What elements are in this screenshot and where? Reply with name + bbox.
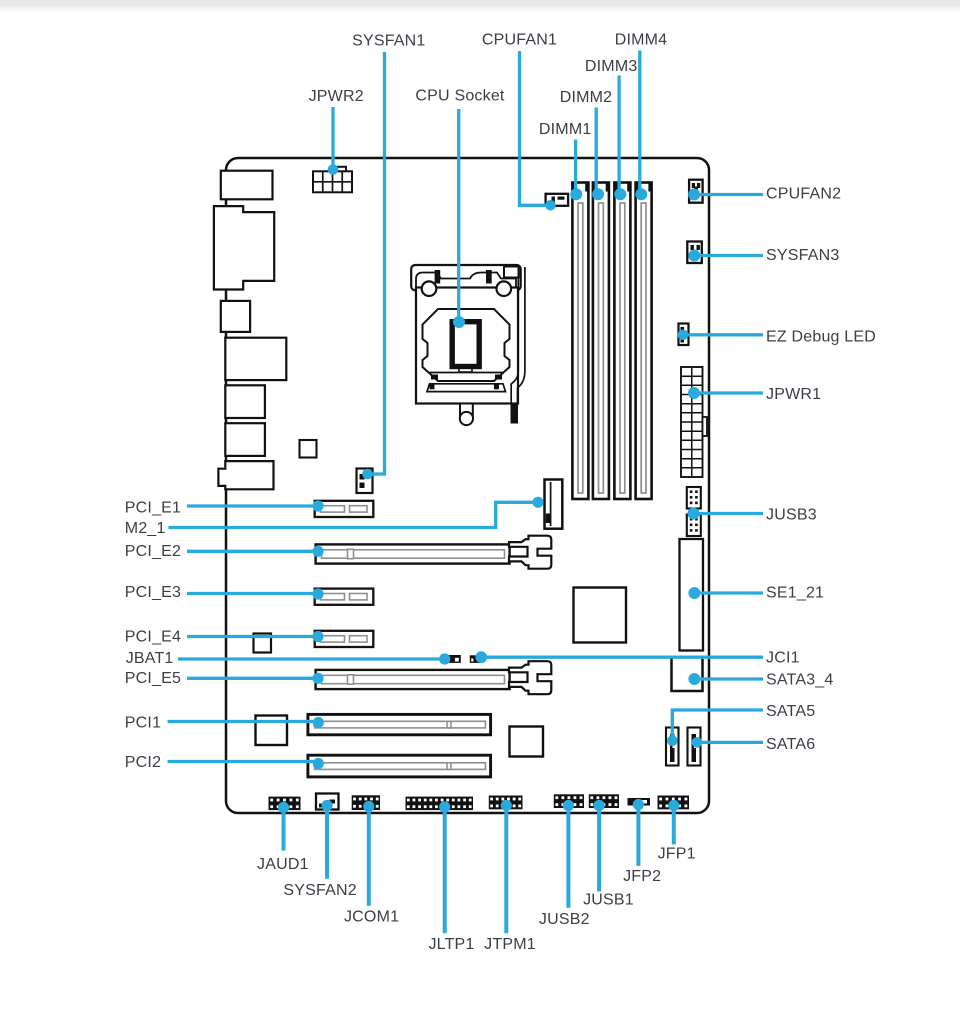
svg-text:JFP2: JFP2 [623, 868, 661, 885]
svg-text:JAUD1: JAUD1 [257, 856, 309, 873]
svg-text:CPUFAN2: CPUFAN2 [766, 186, 841, 203]
svg-text:JUSB3: JUSB3 [766, 506, 817, 523]
svg-text:SE1_21: SE1_21 [766, 585, 824, 602]
svg-text:DIMM1: DIMM1 [539, 121, 592, 138]
svg-text:PCI1: PCI1 [125, 715, 161, 732]
svg-text:JBAT1: JBAT1 [126, 650, 174, 667]
svg-text:PCI2: PCI2 [125, 754, 161, 771]
svg-text:M2_1: M2_1 [125, 520, 166, 537]
svg-text:DIMM3: DIMM3 [585, 58, 638, 75]
svg-text:JCOM1: JCOM1 [344, 909, 399, 926]
svg-text:DIMM4: DIMM4 [615, 32, 668, 49]
svg-text:JCI1: JCI1 [766, 649, 800, 666]
svg-text:PCI_E4: PCI_E4 [125, 628, 181, 645]
svg-text:JLTP1: JLTP1 [428, 936, 474, 953]
svg-text:JFP1: JFP1 [658, 846, 696, 863]
svg-text:JPWR2: JPWR2 [309, 88, 364, 105]
svg-text:CPUFAN1: CPUFAN1 [482, 32, 557, 49]
svg-text:PCI_E5: PCI_E5 [125, 670, 181, 687]
svg-text:SYSFAN3: SYSFAN3 [766, 247, 839, 264]
svg-text:EZ Debug LED: EZ Debug LED [766, 328, 876, 345]
svg-text:SYSFAN1: SYSFAN1 [352, 33, 425, 50]
svg-text:JUSB2: JUSB2 [539, 911, 590, 928]
svg-text:JUSB1: JUSB1 [583, 892, 634, 909]
svg-text:JPWR1: JPWR1 [766, 386, 821, 403]
svg-text:SATA6: SATA6 [766, 736, 815, 753]
svg-text:SATA3_4: SATA3_4 [766, 671, 834, 688]
svg-text:PCI_E2: PCI_E2 [125, 543, 181, 560]
svg-text:PCI_E1: PCI_E1 [125, 499, 181, 516]
svg-text:DIMM2: DIMM2 [560, 89, 613, 106]
svg-text:PCI_E3: PCI_E3 [125, 584, 181, 601]
svg-text:SYSFAN2: SYSFAN2 [283, 882, 356, 899]
svg-text:CPU Socket: CPU Socket [415, 88, 504, 105]
svg-text:JTPM1: JTPM1 [484, 936, 536, 953]
svg-text:SATA5: SATA5 [766, 703, 815, 720]
